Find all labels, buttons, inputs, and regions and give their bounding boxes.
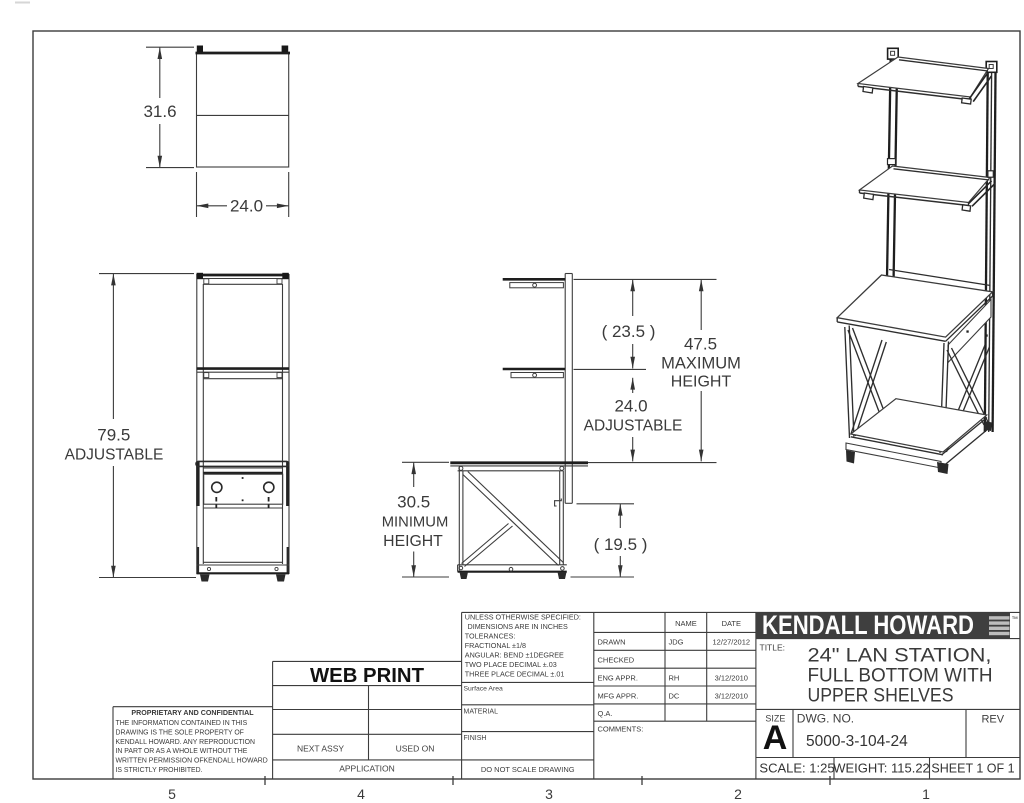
svg-text:UNLESS OTHERWISE SPECIFIED:: UNLESS OTHERWISE SPECIFIED: — [465, 613, 581, 622]
svg-text:3/12/2010: 3/12/2010 — [715, 674, 748, 683]
svg-text:TWO PLACE DECIMAL ±.03: TWO PLACE DECIMAL ±.03 — [465, 660, 557, 669]
svg-text:ENG APPR.: ENG APPR. — [598, 674, 638, 683]
svg-text:DO NOT SCALE DRAWING: DO NOT SCALE DRAWING — [481, 765, 575, 774]
svg-text:( 19.5 ): ( 19.5 ) — [594, 535, 648, 554]
svg-text:ADJUSTABLE: ADJUSTABLE — [584, 418, 683, 435]
svg-text:UPPER SHELVES: UPPER SHELVES — [808, 685, 954, 707]
svg-text:( 23.5 ): ( 23.5 ) — [602, 322, 656, 341]
svg-text:JDG: JDG — [669, 638, 684, 647]
svg-text:24" LAN STATION,: 24" LAN STATION, — [808, 645, 992, 667]
svg-text:1: 1 — [922, 786, 930, 802]
svg-text:5: 5 — [168, 786, 176, 802]
svg-text:MATERIAL: MATERIAL — [464, 709, 499, 716]
svg-text:WRITTEN PERMISSION OFKENDALL H: WRITTEN PERMISSION OFKENDALL HOWARD — [116, 758, 268, 765]
svg-text:4: 4 — [357, 786, 365, 802]
svg-text:MAXIMUM: MAXIMUM — [661, 355, 741, 373]
svg-text:NEXT ASSY: NEXT ASSY — [297, 744, 344, 754]
svg-text:NAME: NAME — [675, 619, 697, 628]
svg-text:Q.A.: Q.A. — [598, 709, 613, 718]
svg-text:USED ON: USED ON — [396, 744, 435, 754]
svg-text:24.0: 24.0 — [614, 397, 647, 416]
svg-text:31.6: 31.6 — [143, 102, 176, 121]
svg-text:DRAWN: DRAWN — [598, 638, 626, 647]
svg-text:12/27/2012: 12/27/2012 — [713, 638, 751, 647]
svg-text:IN PART OR AS A WHOLE WITHOUT: IN PART OR AS A WHOLE WITHOUT THE — [116, 748, 248, 755]
svg-text:DWG. NO.: DWG. NO. — [797, 712, 854, 726]
svg-text:3: 3 — [545, 786, 553, 802]
svg-text:Surface Area: Surface Area — [464, 686, 504, 693]
svg-text:SCALE: 1:25: SCALE: 1:25 — [759, 761, 834, 776]
svg-text:SHEET 1 OF 1: SHEET 1 OF 1 — [931, 762, 1014, 776]
svg-text:WEB PRINT: WEB PRINT — [310, 664, 424, 687]
svg-text:5000-3-104-24: 5000-3-104-24 — [806, 733, 908, 750]
svg-text:TITLE:: TITLE: — [760, 643, 786, 653]
svg-text:PROPRIETARY AND CONFIDENTIAL: PROPRIETARY AND CONFIDENTIAL — [131, 709, 254, 717]
svg-text:THREE PLACE DECIMAL ±.01: THREE PLACE DECIMAL ±.01 — [465, 670, 565, 679]
svg-text:HEIGHT: HEIGHT — [383, 533, 443, 550]
svg-text:RH: RH — [669, 674, 680, 683]
svg-text:24.0: 24.0 — [230, 197, 263, 216]
svg-text:COMMENTS:: COMMENTS: — [598, 725, 644, 734]
svg-text:DATE: DATE — [722, 619, 741, 628]
svg-text:IS STRICTLY PROHIBITED.: IS STRICTLY PROHIBITED. — [116, 767, 203, 774]
svg-text:KENDALL HOWARD: KENDALL HOWARD — [762, 610, 974, 640]
svg-text:FINISH: FINISH — [464, 735, 487, 742]
svg-text:MFG APPR.: MFG APPR. — [598, 692, 639, 701]
svg-text:A: A — [763, 719, 788, 757]
svg-text:47.5: 47.5 — [684, 335, 717, 354]
svg-text:HEIGHT: HEIGHT — [671, 374, 732, 391]
svg-text:3/12/2010: 3/12/2010 — [715, 692, 748, 701]
svg-text:TOLERANCES:: TOLERANCES: — [465, 632, 516, 641]
svg-text:ANGULAR: BEND ±1DEGREE: ANGULAR: BEND ±1DEGREE — [465, 651, 564, 660]
svg-text:MINIMUM: MINIMUM — [382, 515, 449, 531]
svg-text:30.5: 30.5 — [397, 493, 430, 512]
svg-text:REV: REV — [981, 714, 1004, 726]
svg-text:THE INFORMATION CONTAINED IN T: THE INFORMATION CONTAINED IN THIS — [116, 720, 248, 727]
svg-text:CHECKED: CHECKED — [598, 656, 635, 665]
svg-text:APPLICATION: APPLICATION — [339, 764, 395, 774]
svg-text:FULL BOTTOM WITH: FULL BOTTOM WITH — [808, 665, 993, 687]
svg-text:WEIGHT: 115.22: WEIGHT: 115.22 — [833, 761, 930, 776]
svg-text:2: 2 — [734, 786, 742, 802]
svg-text:DC: DC — [669, 692, 680, 701]
svg-text:ADJUSTABLE: ADJUSTABLE — [65, 447, 164, 464]
svg-text:DIMENSIONS ARE IN INCHES: DIMENSIONS ARE IN INCHES — [468, 622, 568, 631]
svg-text:79.5: 79.5 — [97, 426, 130, 445]
svg-text:KENDALL HOWARD. ANY REPRODUCT: KENDALL HOWARD. ANY REPRODUCTION — [116, 739, 256, 746]
svg-text:DRAWING IS THE SOLE PROPERTY O: DRAWING IS THE SOLE PROPERTY OF — [116, 729, 244, 736]
svg-text:FRACTIONAL ±1/8: FRACTIONAL ±1/8 — [465, 641, 526, 650]
svg-text:™: ™ — [1012, 616, 1019, 623]
